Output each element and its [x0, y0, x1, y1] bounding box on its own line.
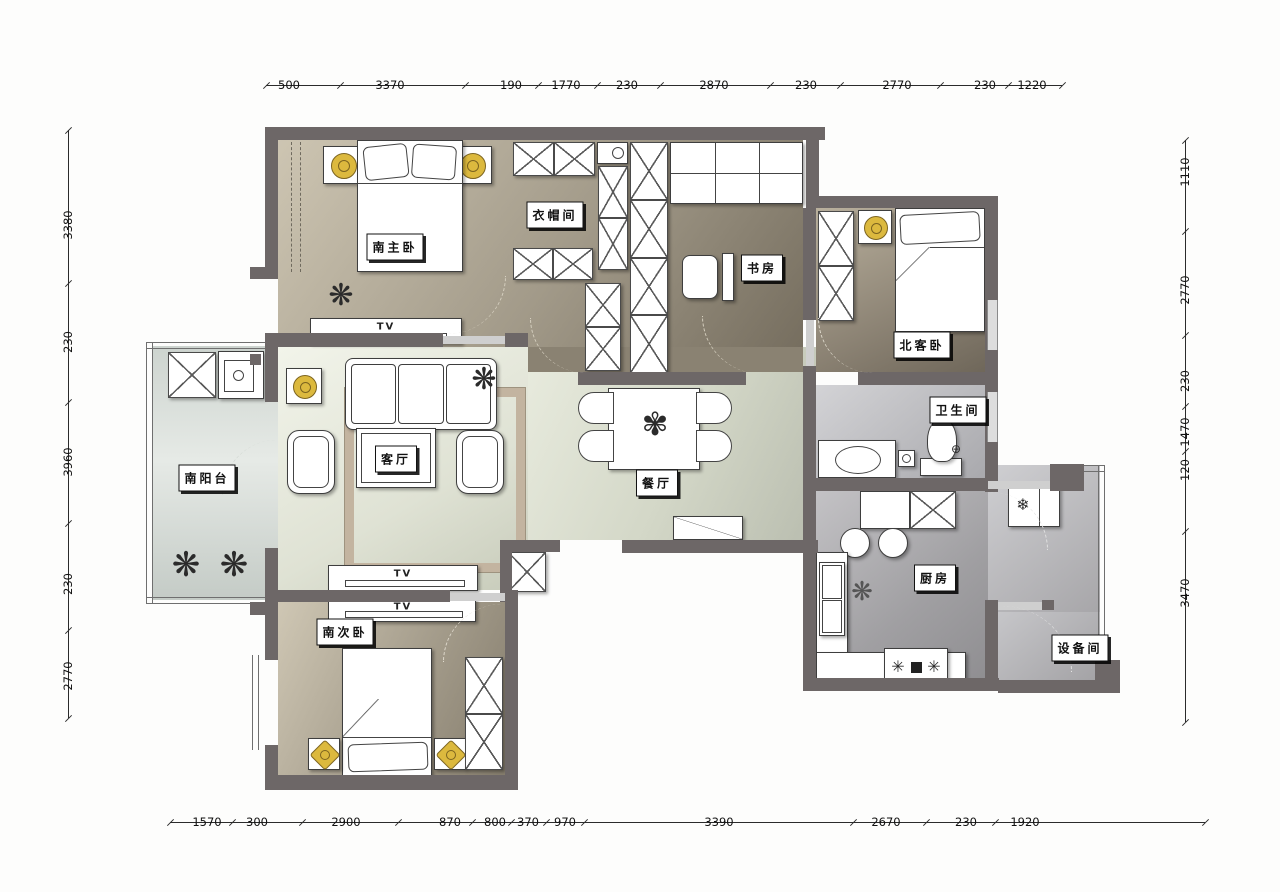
plant-icon: ❋	[220, 548, 249, 582]
wall	[985, 600, 998, 691]
desk-chair	[682, 255, 718, 299]
study-cabinet	[670, 142, 803, 204]
dimension-label: 230	[795, 78, 817, 92]
dimension-label: 3380	[61, 210, 75, 239]
room-label-kitchen: 厨房	[914, 565, 956, 592]
room-label-bathroom: 卫生间	[929, 397, 986, 424]
room-label-equipment-room: 设备间	[1051, 635, 1108, 662]
laundry-sink	[218, 351, 264, 399]
plant-icon: ✾	[642, 408, 669, 440]
window	[987, 392, 998, 442]
room-label-north-guest-bedroom: 北客卧	[893, 332, 950, 359]
door-opening	[806, 320, 814, 366]
dimension-label: 800	[484, 815, 506, 829]
dimension-label: 230	[616, 78, 638, 92]
room-label-south-second-bedroom: 南次卧	[316, 619, 373, 646]
wall	[1050, 464, 1084, 491]
dimension-label: 2900	[331, 815, 360, 829]
wardrobe	[598, 166, 628, 270]
dimension-label: 1920	[1010, 815, 1039, 829]
plant-icon: ❋	[471, 365, 496, 395]
floor-plan: TV ❋ ⊕ ❋	[0, 0, 1280, 892]
wardrobe	[513, 248, 593, 280]
tv-label: TV	[377, 322, 396, 333]
door-opening	[443, 336, 505, 344]
floor-drain-icon: ⊕	[951, 443, 961, 455]
window	[987, 300, 998, 350]
curtain-line	[291, 142, 292, 272]
tv-label: TV	[394, 602, 413, 613]
wall	[265, 590, 450, 602]
dimension-label: 2670	[871, 815, 900, 829]
shoe-cabinet	[673, 516, 743, 540]
dimension-label: 230	[1178, 370, 1192, 392]
wardrobe	[818, 211, 854, 321]
room-label-master-bedroom: 南主卧	[366, 234, 423, 261]
lamp-icon	[460, 153, 486, 179]
dimension-line-bottom	[170, 822, 1205, 823]
dimension-label: 230	[61, 573, 75, 595]
dimension-label: 190	[500, 78, 522, 92]
room-label-living-room: 客厅	[375, 446, 417, 473]
room-label-cloakroom: 衣帽间	[526, 202, 583, 229]
wall	[806, 196, 998, 208]
cabinet	[597, 142, 628, 164]
dining-chair	[696, 392, 732, 424]
dimension-label: 500	[278, 78, 300, 92]
dimension-label: 1570	[192, 815, 221, 829]
dining-chair	[696, 430, 732, 462]
dimension-label: 230	[61, 331, 75, 353]
wall	[803, 678, 999, 691]
armchair	[287, 430, 335, 494]
wall	[858, 372, 998, 385]
wardrobe	[465, 657, 503, 770]
dining-chair	[578, 392, 614, 424]
wardrobe	[513, 142, 595, 176]
dimension-label: 870	[439, 815, 461, 829]
wall	[265, 345, 278, 402]
bar-stool	[878, 528, 908, 558]
bed-second	[342, 648, 432, 776]
wall	[265, 127, 278, 279]
room-label-study: 书房	[741, 255, 783, 282]
wall	[265, 775, 518, 790]
kitchen-sink	[819, 562, 845, 636]
vanity-sink	[818, 440, 896, 478]
lamp-icon	[331, 153, 357, 179]
door-opening	[988, 481, 1050, 489]
dimension-label: 230	[955, 815, 977, 829]
wall	[806, 127, 819, 207]
room-label-dining-room: 餐厅	[636, 470, 678, 497]
bed-guest	[895, 208, 985, 332]
dimension-label: 230	[974, 78, 996, 92]
plant-icon: ❋	[851, 579, 873, 605]
balcony-window-top	[146, 342, 278, 349]
dimension-label: 3390	[704, 815, 733, 829]
armchair	[456, 430, 504, 494]
hall-cabinet	[585, 283, 621, 371]
dimension-label: 1470	[1178, 417, 1192, 446]
plant-icon: ❋	[172, 548, 201, 582]
wall	[265, 548, 278, 602]
kitchen-cabinet	[910, 491, 956, 529]
curtain-line	[300, 142, 301, 272]
dimension-label: 2870	[699, 78, 728, 92]
wall	[803, 208, 816, 320]
tv-label: TV	[394, 569, 413, 580]
dimension-label: 2770	[1178, 275, 1192, 304]
room-label-south-balcony: 南阳台	[178, 465, 235, 492]
wall	[1042, 600, 1054, 610]
bedroom-window-left	[252, 655, 259, 750]
faucet-box	[898, 450, 915, 467]
dimension-label: 3960	[61, 447, 75, 476]
wall	[505, 333, 528, 347]
dimension-label: 3470	[1178, 578, 1192, 607]
door-opening	[450, 593, 505, 601]
hall-cabinet	[630, 142, 668, 373]
dimension-label: 2770	[882, 78, 911, 92]
dimension-label: 300	[246, 815, 268, 829]
wall	[265, 745, 278, 790]
wall	[816, 478, 988, 491]
desk	[722, 253, 734, 301]
wall	[505, 590, 518, 790]
dimension-label: 1220	[1017, 78, 1046, 92]
dimension-label: 970	[554, 815, 576, 829]
balcony-window-left	[146, 342, 153, 604]
column-cabinet	[508, 552, 546, 592]
lamp-icon	[864, 216, 888, 240]
wall	[622, 540, 818, 553]
dimension-label: 3370	[375, 78, 404, 92]
dining-chair	[578, 430, 614, 462]
wall	[265, 333, 443, 347]
wall	[803, 491, 816, 691]
wall	[803, 366, 816, 491]
washing-machine	[168, 352, 216, 398]
burner-icon: ✳	[927, 659, 940, 675]
plant-icon: ❋	[328, 281, 353, 311]
dimension-label: 120	[1178, 459, 1192, 481]
dimension-label: 1770	[551, 78, 580, 92]
wall	[578, 372, 746, 385]
kitchen-bar-counter	[860, 491, 910, 529]
wall	[250, 267, 278, 279]
wall	[250, 602, 278, 615]
dimension-label: 370	[517, 815, 539, 829]
lamp-icon	[293, 375, 317, 399]
burner-icon: ✳	[891, 659, 904, 675]
dimension-label: 1110	[1178, 157, 1192, 186]
wall	[265, 127, 825, 140]
wall	[1095, 660, 1120, 693]
dimension-label: 2770	[61, 661, 75, 690]
